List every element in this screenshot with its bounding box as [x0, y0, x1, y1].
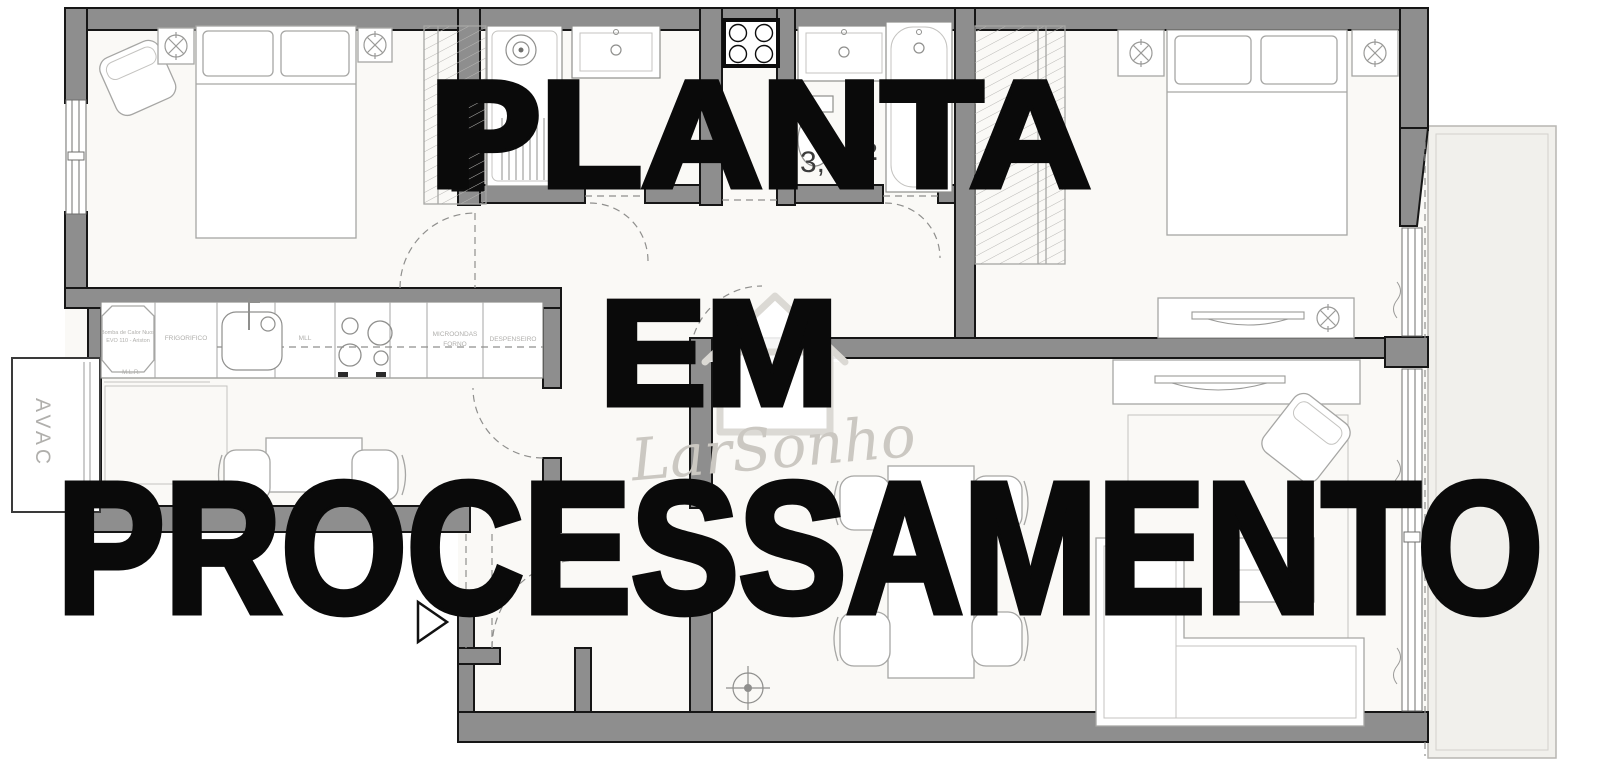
window-bedroom1-left	[66, 100, 86, 214]
double-bed	[196, 26, 356, 238]
fridge-label: FRIGORIFICO	[165, 335, 208, 342]
heat-pump-label-2: EVO 110 - Ariston	[106, 338, 150, 344]
wall-left-upper	[65, 8, 87, 103]
floor-plan-image: AVAC	[0, 0, 1600, 778]
dishwasher-label: MLL	[299, 335, 312, 342]
avac-label: AVAC	[31, 398, 54, 468]
balcony	[1428, 126, 1556, 758]
watermark-line-2: EM	[600, 271, 838, 436]
watermark-line-1: PLANTA	[430, 50, 1090, 218]
washer-label: M.L.R.	[122, 370, 140, 376]
window-bedroom2-balcony	[1402, 228, 1422, 336]
microwave-label-1: MICROONDAS	[433, 331, 478, 338]
heat-pump-label-1: Bomba de Calor Nuos	[101, 330, 155, 336]
wall-entry-right	[575, 648, 591, 718]
tv-console	[1113, 360, 1360, 404]
dresser-tv	[1158, 298, 1354, 338]
wall-right-upper	[1400, 8, 1428, 130]
microwave-label-2: FORNO	[443, 341, 466, 348]
pantry-label: DESPENSEIRO	[490, 336, 537, 343]
wall-bed2-living	[753, 338, 1428, 358]
watermark-line-3: PROCESSAMENTO	[57, 445, 1543, 652]
wall-right-mid-stub	[1385, 337, 1428, 367]
double-bed	[1167, 30, 1347, 235]
wall-kitchen-right-upper	[543, 308, 561, 388]
floor-plan-svg: AVAC	[0, 0, 1600, 778]
